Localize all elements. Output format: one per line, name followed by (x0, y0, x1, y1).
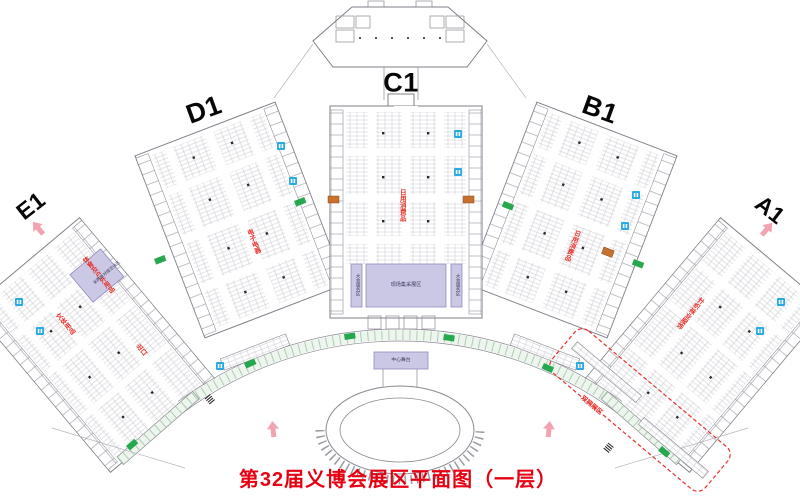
pavilion-tab (368, 1, 384, 7)
restroom-icon (454, 168, 462, 176)
entrance-rotunda (320, 369, 480, 480)
floorplan: C1 D1 B1 E1 A1 日用消费品 电子电器 日用消费品 体育及户外用品 … (0, 0, 800, 497)
service-left-label: 大会服务区 (354, 274, 359, 297)
hall-c1-rooms-right (469, 110, 482, 314)
service-right-label: 大会服务区 (454, 274, 459, 297)
restroom-icon (15, 298, 23, 306)
restroom-icon (632, 191, 640, 199)
stairs-icon (205, 395, 215, 405)
exit-block (154, 255, 166, 265)
restroom-icon (576, 362, 584, 370)
restroom-icon (454, 130, 462, 138)
restroom-icon (36, 327, 44, 335)
stage-label: 中心舞台 (391, 358, 410, 363)
service-gate-block (328, 196, 339, 203)
hall-b1 (467, 102, 677, 338)
procurement-zone-label: 现场集采展区 (391, 282, 422, 287)
rotunda-inner (340, 398, 460, 462)
restroom-icon (216, 362, 224, 370)
restroom-icon (277, 142, 285, 150)
page-title: 第32届义博会展区平面图（一层） (239, 470, 557, 490)
restroom-icon (621, 222, 629, 230)
entrance-arrow-icon (542, 420, 556, 437)
pavilion-tab (416, 1, 432, 7)
hall-c1-entry-gap (394, 106, 418, 112)
zone-label-c1: 日用消费品 (398, 189, 405, 222)
hall-d1 (135, 102, 345, 338)
restroom-icon (756, 327, 764, 335)
service-gate-block (463, 196, 474, 203)
entrance-arrow-icon (266, 420, 280, 437)
stairs-icon (604, 443, 614, 453)
restroom-icon (289, 177, 297, 185)
restroom-icon (777, 298, 785, 306)
hall-label-c1: C1 (383, 70, 419, 97)
hall-c1-rooms-left (330, 110, 343, 314)
